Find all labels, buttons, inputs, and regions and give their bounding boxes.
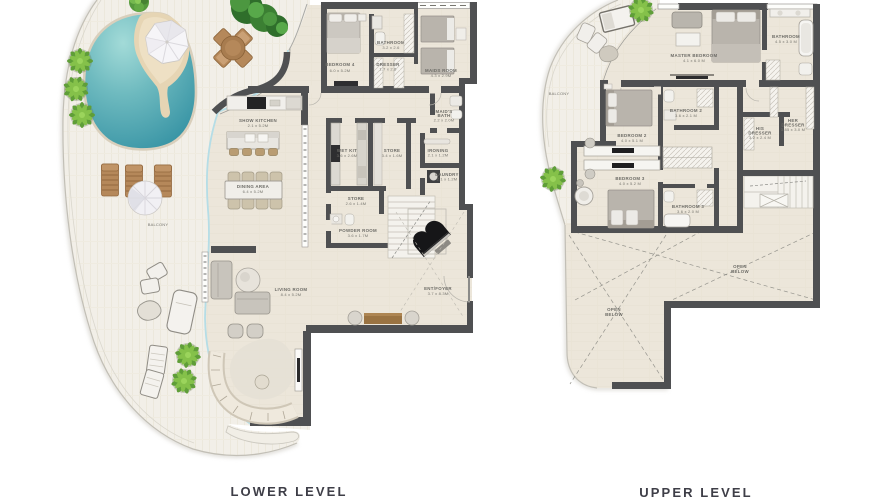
svg-text:4.5 x 3.0 M: 4.5 x 3.0 M: [775, 39, 797, 44]
svg-text:2.1 x 5.2M: 2.1 x 5.2M: [248, 123, 269, 128]
svg-text:4.3 x 2.9M: 4.3 x 2.9M: [431, 73, 452, 78]
svg-text:2.6 x 1.4M: 2.6 x 1.4M: [346, 201, 367, 206]
svg-text:3.6 x 1.7M: 3.6 x 1.7M: [348, 233, 369, 238]
svg-text:3.2 x 2.6: 3.2 x 2.6: [382, 45, 400, 50]
svg-text:UPPER LEVEL: UPPER LEVEL: [639, 485, 752, 500]
svg-text:3.4 x 1.6M: 3.4 x 1.6M: [382, 153, 403, 158]
svg-text:4.0 x 5.1 M: 4.0 x 5.1 M: [621, 138, 643, 143]
svg-text:4.0 x 5.2 M: 4.0 x 5.2 M: [619, 181, 641, 186]
svg-text:3.6 x 2.0 M: 3.6 x 2.0 M: [677, 209, 699, 214]
svg-text:4.1 x 6.0 M: 4.1 x 6.0 M: [683, 58, 705, 63]
svg-text:2.1 x 1.2M: 2.1 x 1.2M: [428, 153, 449, 158]
svg-text:BALCONY: BALCONY: [549, 91, 570, 96]
svg-text:BEDROOM 4: BEDROOM 4: [325, 62, 355, 67]
svg-text:3.6 x 2.1 M: 3.6 x 2.1 M: [675, 113, 697, 118]
svg-text:2.2 x 2.0M: 2.2 x 2.0M: [434, 118, 455, 123]
svg-text:3.2 x 2.4 M: 3.2 x 2.4 M: [749, 135, 771, 140]
svg-text:BELOW: BELOW: [731, 269, 749, 274]
svg-text:6.4 x 5.2M: 6.4 x 5.2M: [243, 189, 264, 194]
svg-text:2.1 x 1.2M: 2.1 x 1.2M: [437, 177, 458, 182]
svg-text:8.4 x 5.2M: 8.4 x 5.2M: [281, 292, 302, 297]
svg-text:1.7 x 2.6: 1.7 x 2.6: [379, 67, 397, 72]
svg-text:LOWER LEVEL: LOWER LEVEL: [231, 484, 348, 499]
svg-text:3.6 x 2.6M: 3.6 x 2.6M: [337, 153, 358, 158]
svg-text:3.7 x 8.3M: 3.7 x 8.3M: [428, 291, 449, 296]
svg-text:BELOW: BELOW: [605, 312, 623, 317]
svg-text:BALCONY: BALCONY: [148, 222, 169, 227]
svg-text:3.85 x 3.0 M: 3.85 x 3.0 M: [781, 127, 805, 132]
svg-text:6.0 x 5.2M: 6.0 x 5.2M: [330, 68, 351, 73]
